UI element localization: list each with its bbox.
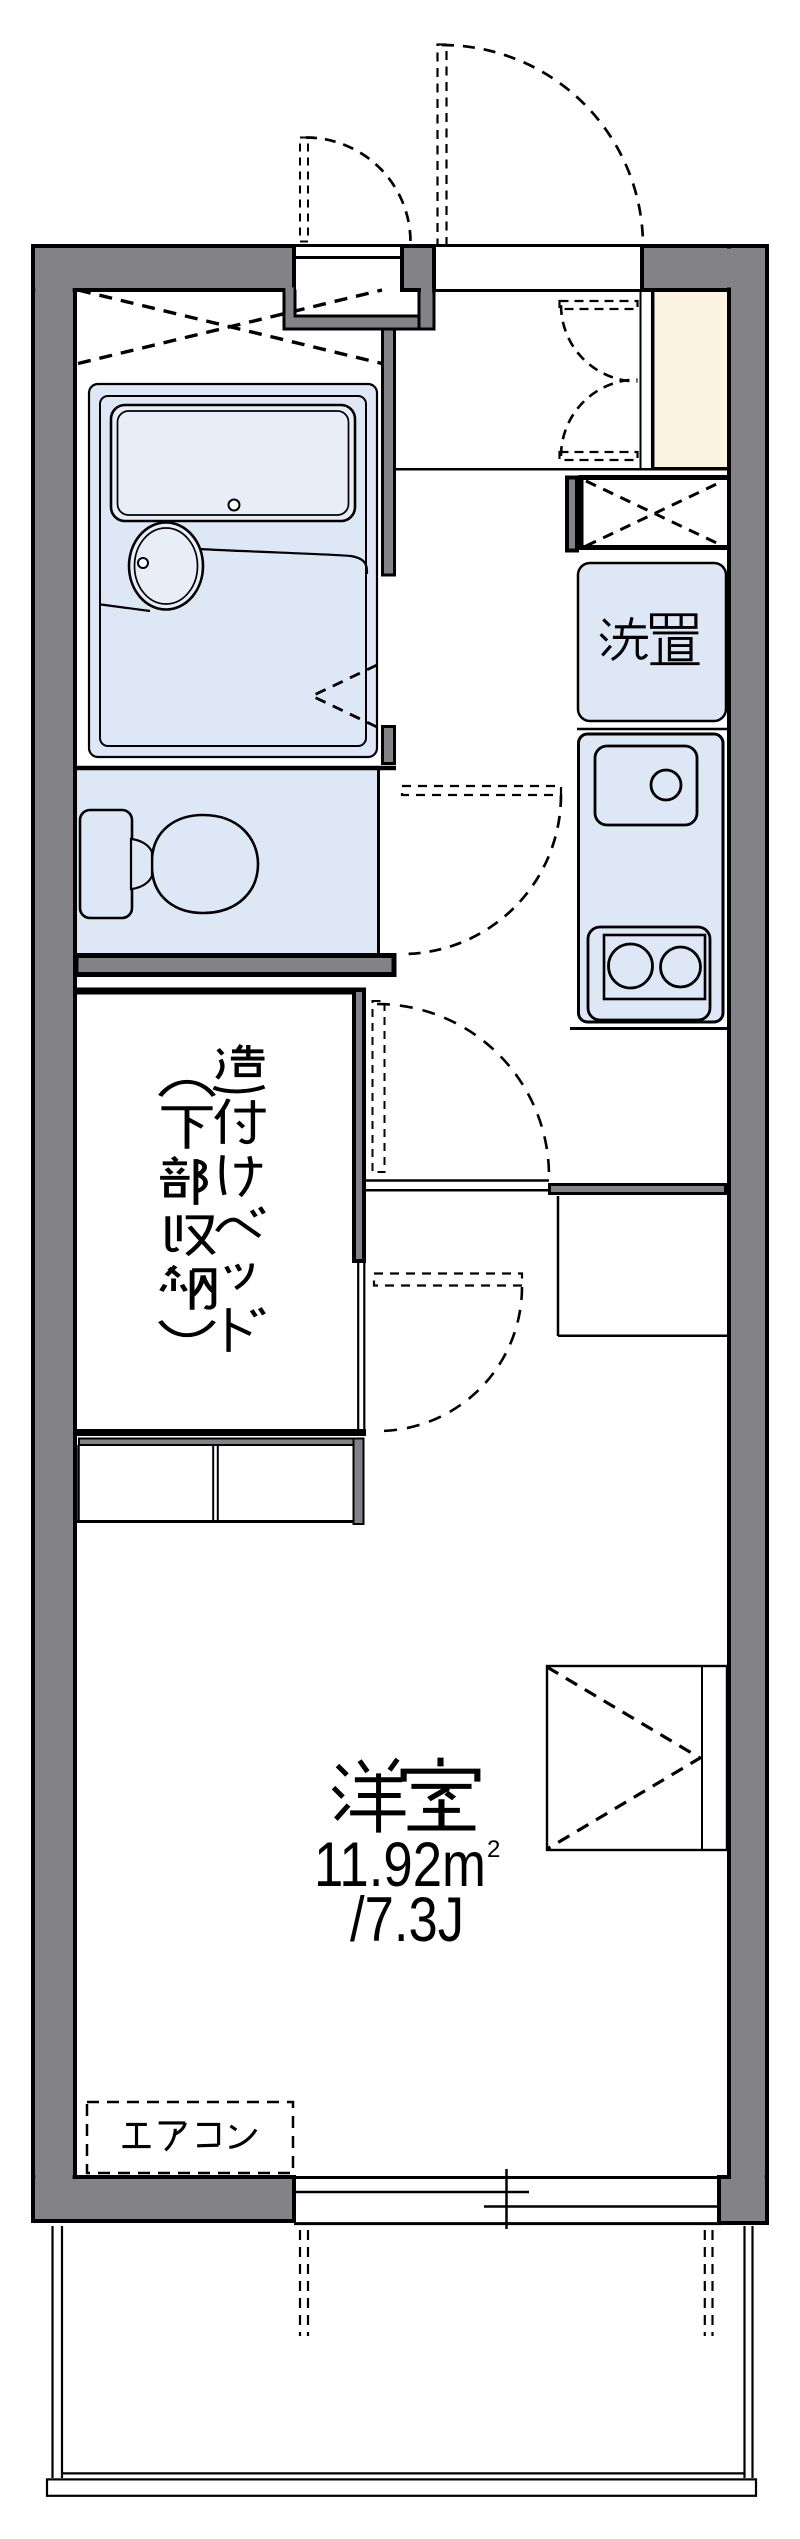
svg-text:2: 2 bbox=[487, 1836, 500, 1863]
svg-text:/7.3J: /7.3J bbox=[350, 1885, 464, 1955]
